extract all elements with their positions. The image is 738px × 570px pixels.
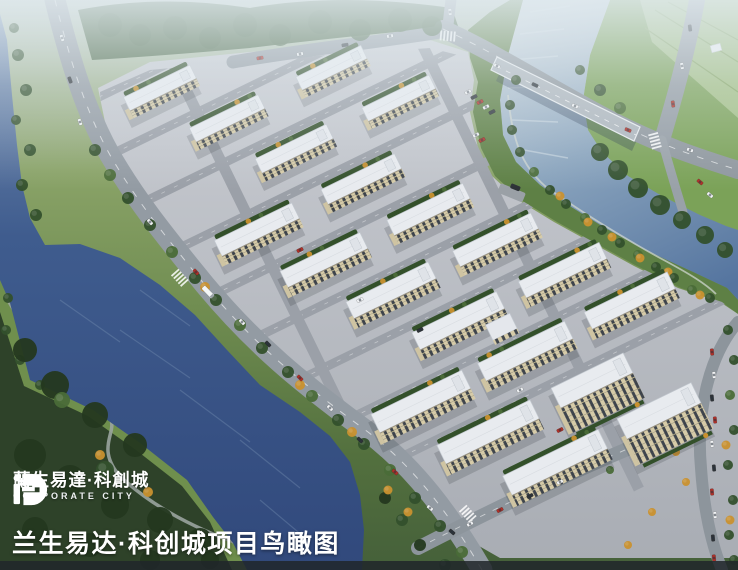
haze-overlay [0,0,738,190]
bottom-shadow-strip [0,561,738,570]
aerial-scene [0,0,738,570]
aerial-rendering-page: 蘭生易達·科創城 CORPORATE CITY 兰生易达·科创城项目鸟瞰图 [0,0,738,570]
